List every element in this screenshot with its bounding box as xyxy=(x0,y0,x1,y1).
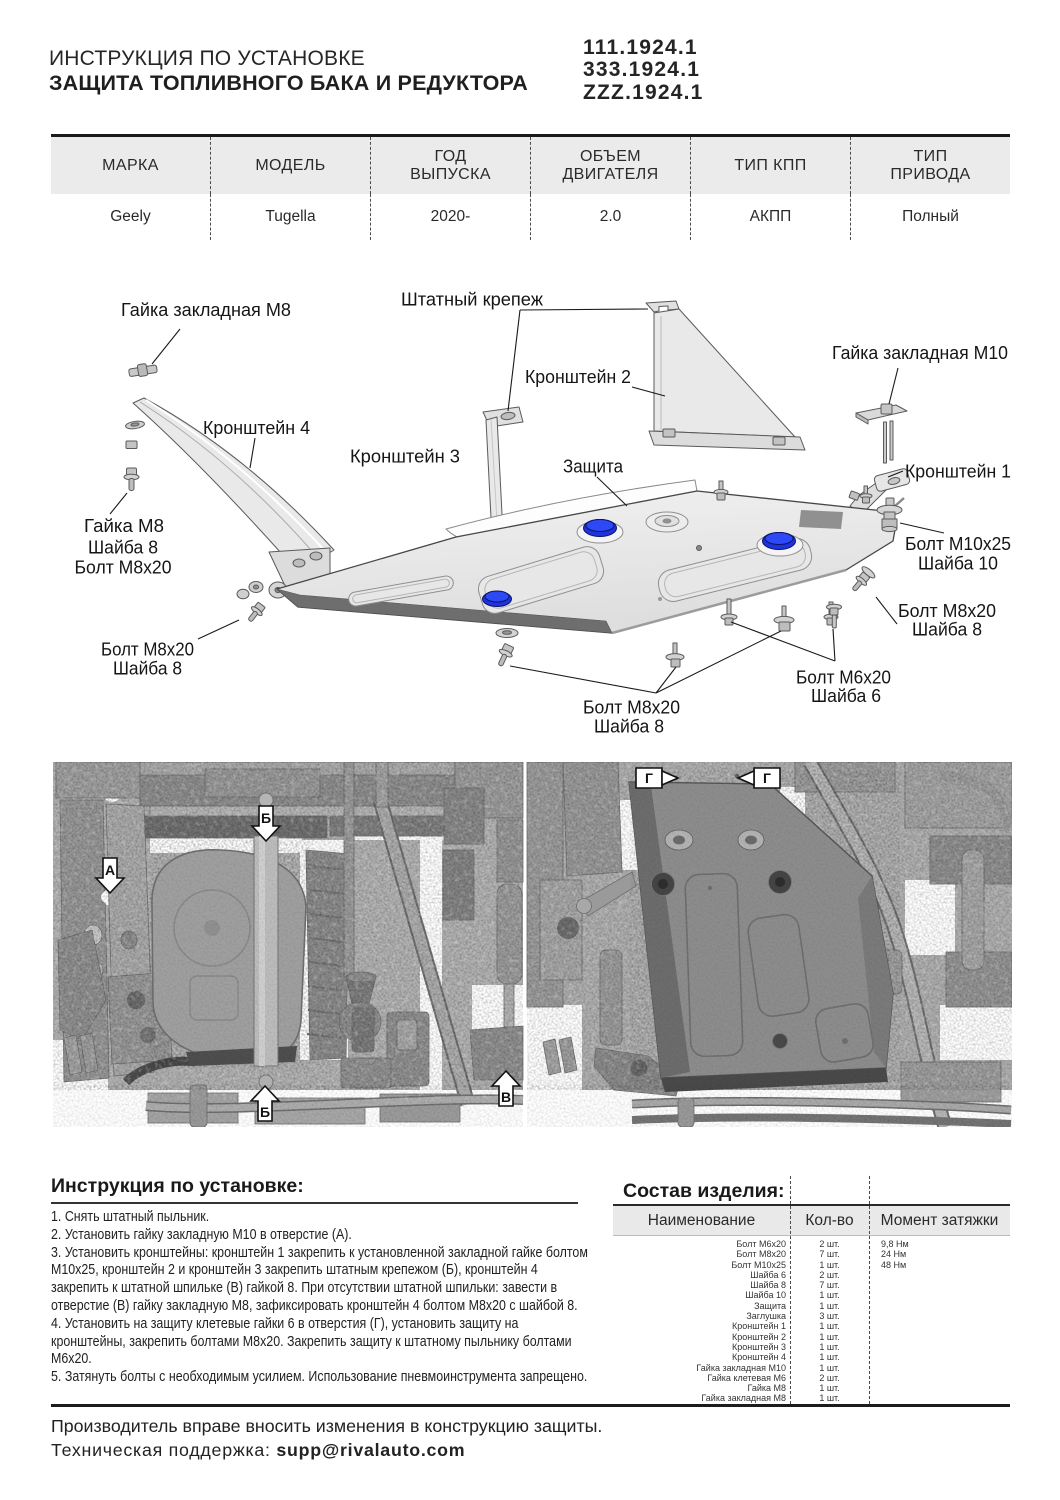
svg-text:Болт М8х20: Болт М8х20 xyxy=(75,558,172,578)
svg-text:Шайба 8: Шайба 8 xyxy=(88,538,158,558)
svg-text:Шайба 8: Шайба 8 xyxy=(594,717,664,737)
svg-text:Защита: Защита xyxy=(563,457,624,477)
svg-text:Шайба 6: Шайба 6 xyxy=(811,686,881,706)
svg-text:Кронштейн 1: Кронштейн 1 xyxy=(905,462,1011,482)
svg-text:Кронштейн 2: Кронштейн 2 xyxy=(525,367,631,387)
svg-text:Кронштейн 3: Кронштейн 3 xyxy=(350,447,460,467)
svg-text:Штатный крепеж: Штатный крепеж xyxy=(401,290,543,310)
svg-text:Болт М8х20: Болт М8х20 xyxy=(898,601,996,621)
svg-text:Болт М6х20: Болт М6х20 xyxy=(796,668,891,688)
svg-text:Гайка закладная М10: Гайка закладная М10 xyxy=(832,343,1008,363)
svg-text:Шайба 8: Шайба 8 xyxy=(113,659,182,679)
svg-text:Болт М8х20: Болт М8х20 xyxy=(583,698,680,718)
svg-text:Болт М10х25: Болт М10х25 xyxy=(905,534,1011,554)
svg-text:Г: Г xyxy=(645,770,653,786)
svg-text:Б: Б xyxy=(261,810,271,826)
svg-text:Шайба 10: Шайба 10 xyxy=(918,554,998,574)
svg-text:Гайка М8: Гайка М8 xyxy=(84,516,164,536)
svg-text:Болт М8х20: Болт М8х20 xyxy=(101,640,194,660)
svg-text:Г: Г xyxy=(763,770,771,786)
svg-text:Б: Б xyxy=(260,1104,270,1120)
svg-text:Кронштейн 4: Кронштейн 4 xyxy=(203,418,310,438)
svg-text:Гайка закладная М8: Гайка закладная М8 xyxy=(121,300,291,320)
svg-text:В: В xyxy=(501,1089,511,1105)
svg-text:Шайба 8: Шайба 8 xyxy=(912,620,982,640)
svg-text:А: А xyxy=(105,862,115,878)
